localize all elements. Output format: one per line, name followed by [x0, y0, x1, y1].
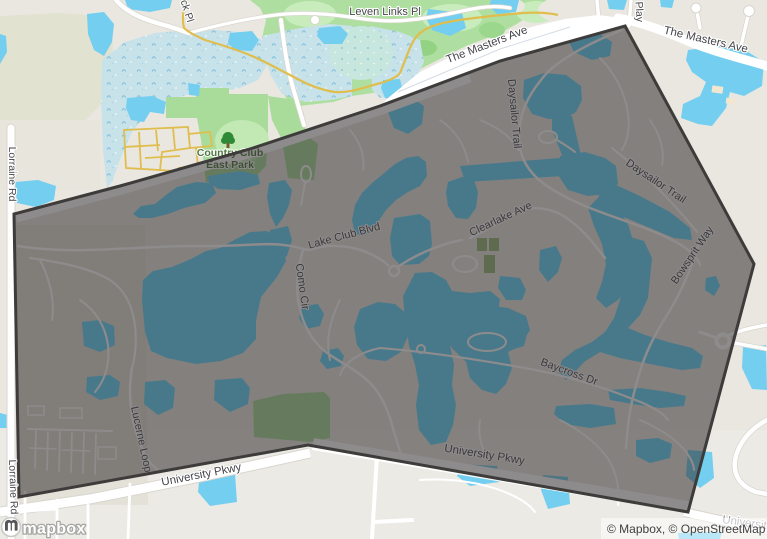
- svg-text:Lorraine Rd: Lorraine Rd: [6, 459, 20, 514]
- svg-text:Lorraine Rd: Lorraine Rd: [6, 147, 18, 202]
- svg-text:Leven Links Pl: Leven Links Pl: [349, 6, 421, 18]
- svg-text:mapbox: mapbox: [23, 521, 86, 538]
- svg-text:© Mapbox, © OpenStreetMap: © Mapbox, © OpenStreetMap: [607, 522, 766, 536]
- svg-text:Play: Play: [632, 1, 645, 23]
